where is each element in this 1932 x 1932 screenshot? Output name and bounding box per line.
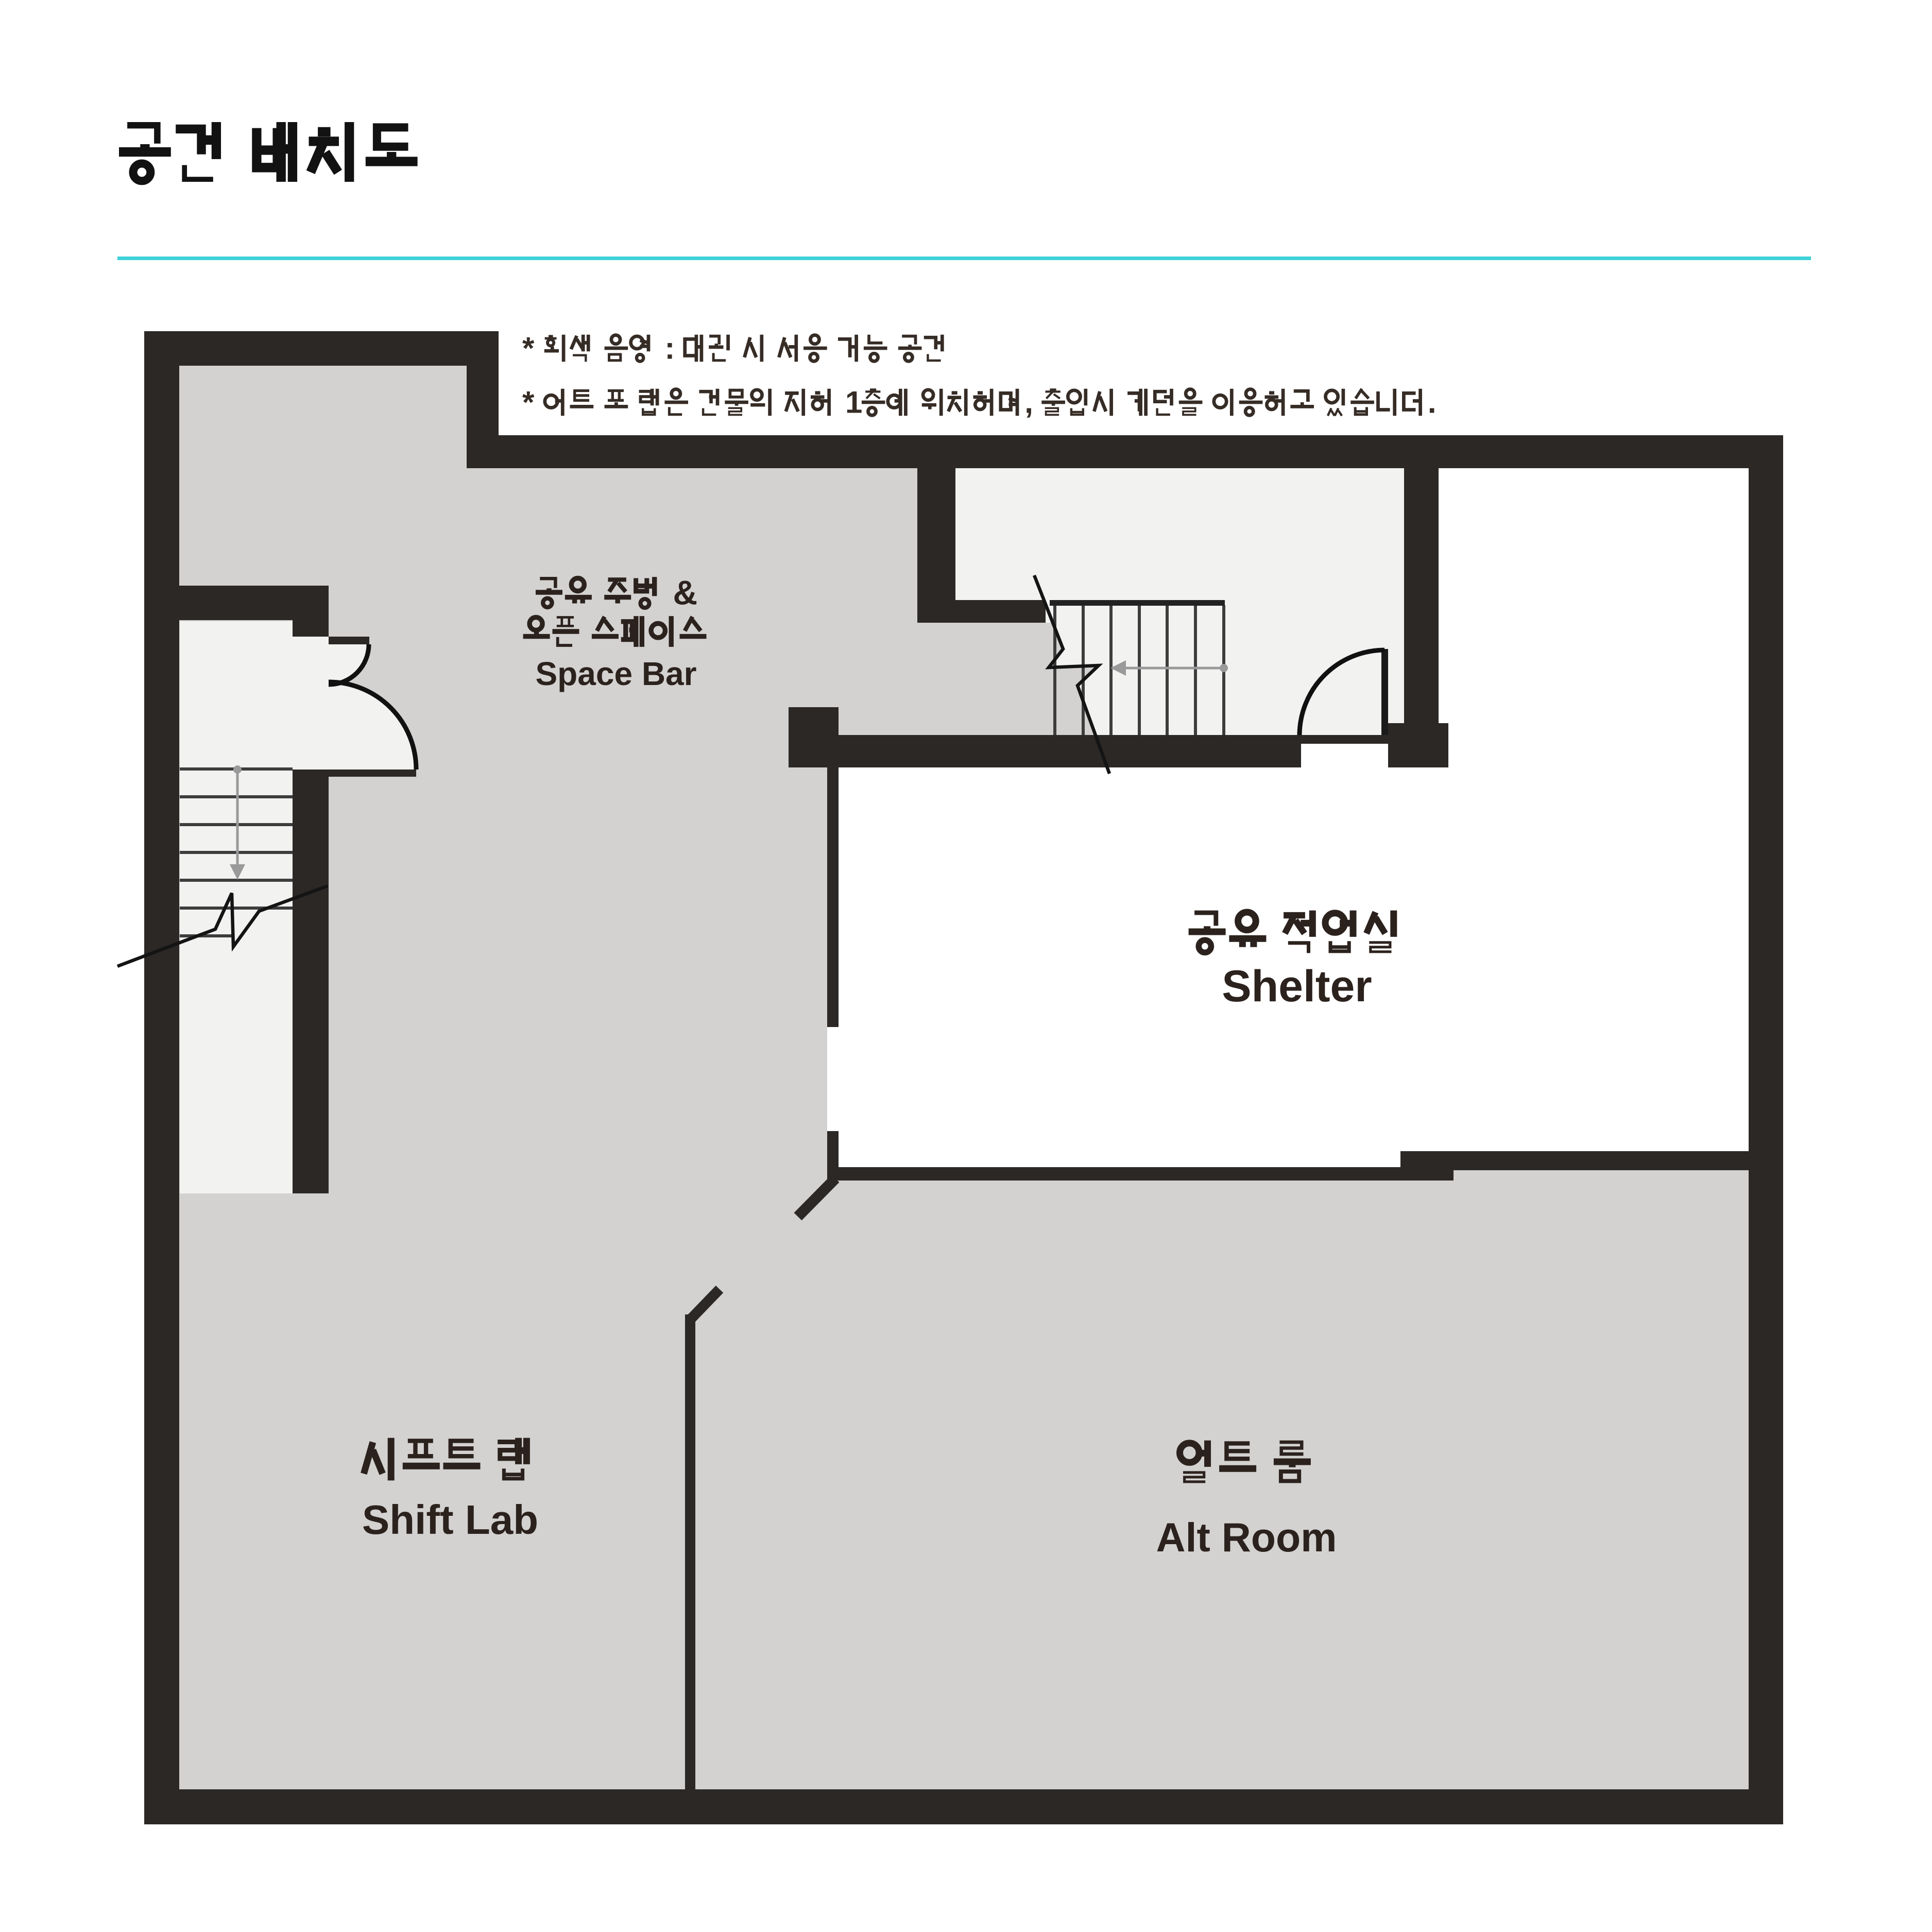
svg-text:1: 1 (845, 385, 862, 420)
svg-text:*: * (522, 331, 535, 366)
svg-text:Alt Room: Alt Room (1156, 1514, 1337, 1560)
svg-text:&: & (673, 573, 698, 611)
svg-text:Shelter: Shelter (1222, 962, 1372, 1011)
svg-text:,: , (1024, 385, 1033, 420)
svg-text::: : (664, 331, 675, 366)
svg-text:.: . (1428, 385, 1437, 420)
svg-text:Shift Lab: Shift Lab (362, 1497, 538, 1543)
svg-text:Space Bar: Space Bar (535, 655, 696, 692)
svg-text:*: * (522, 385, 535, 420)
